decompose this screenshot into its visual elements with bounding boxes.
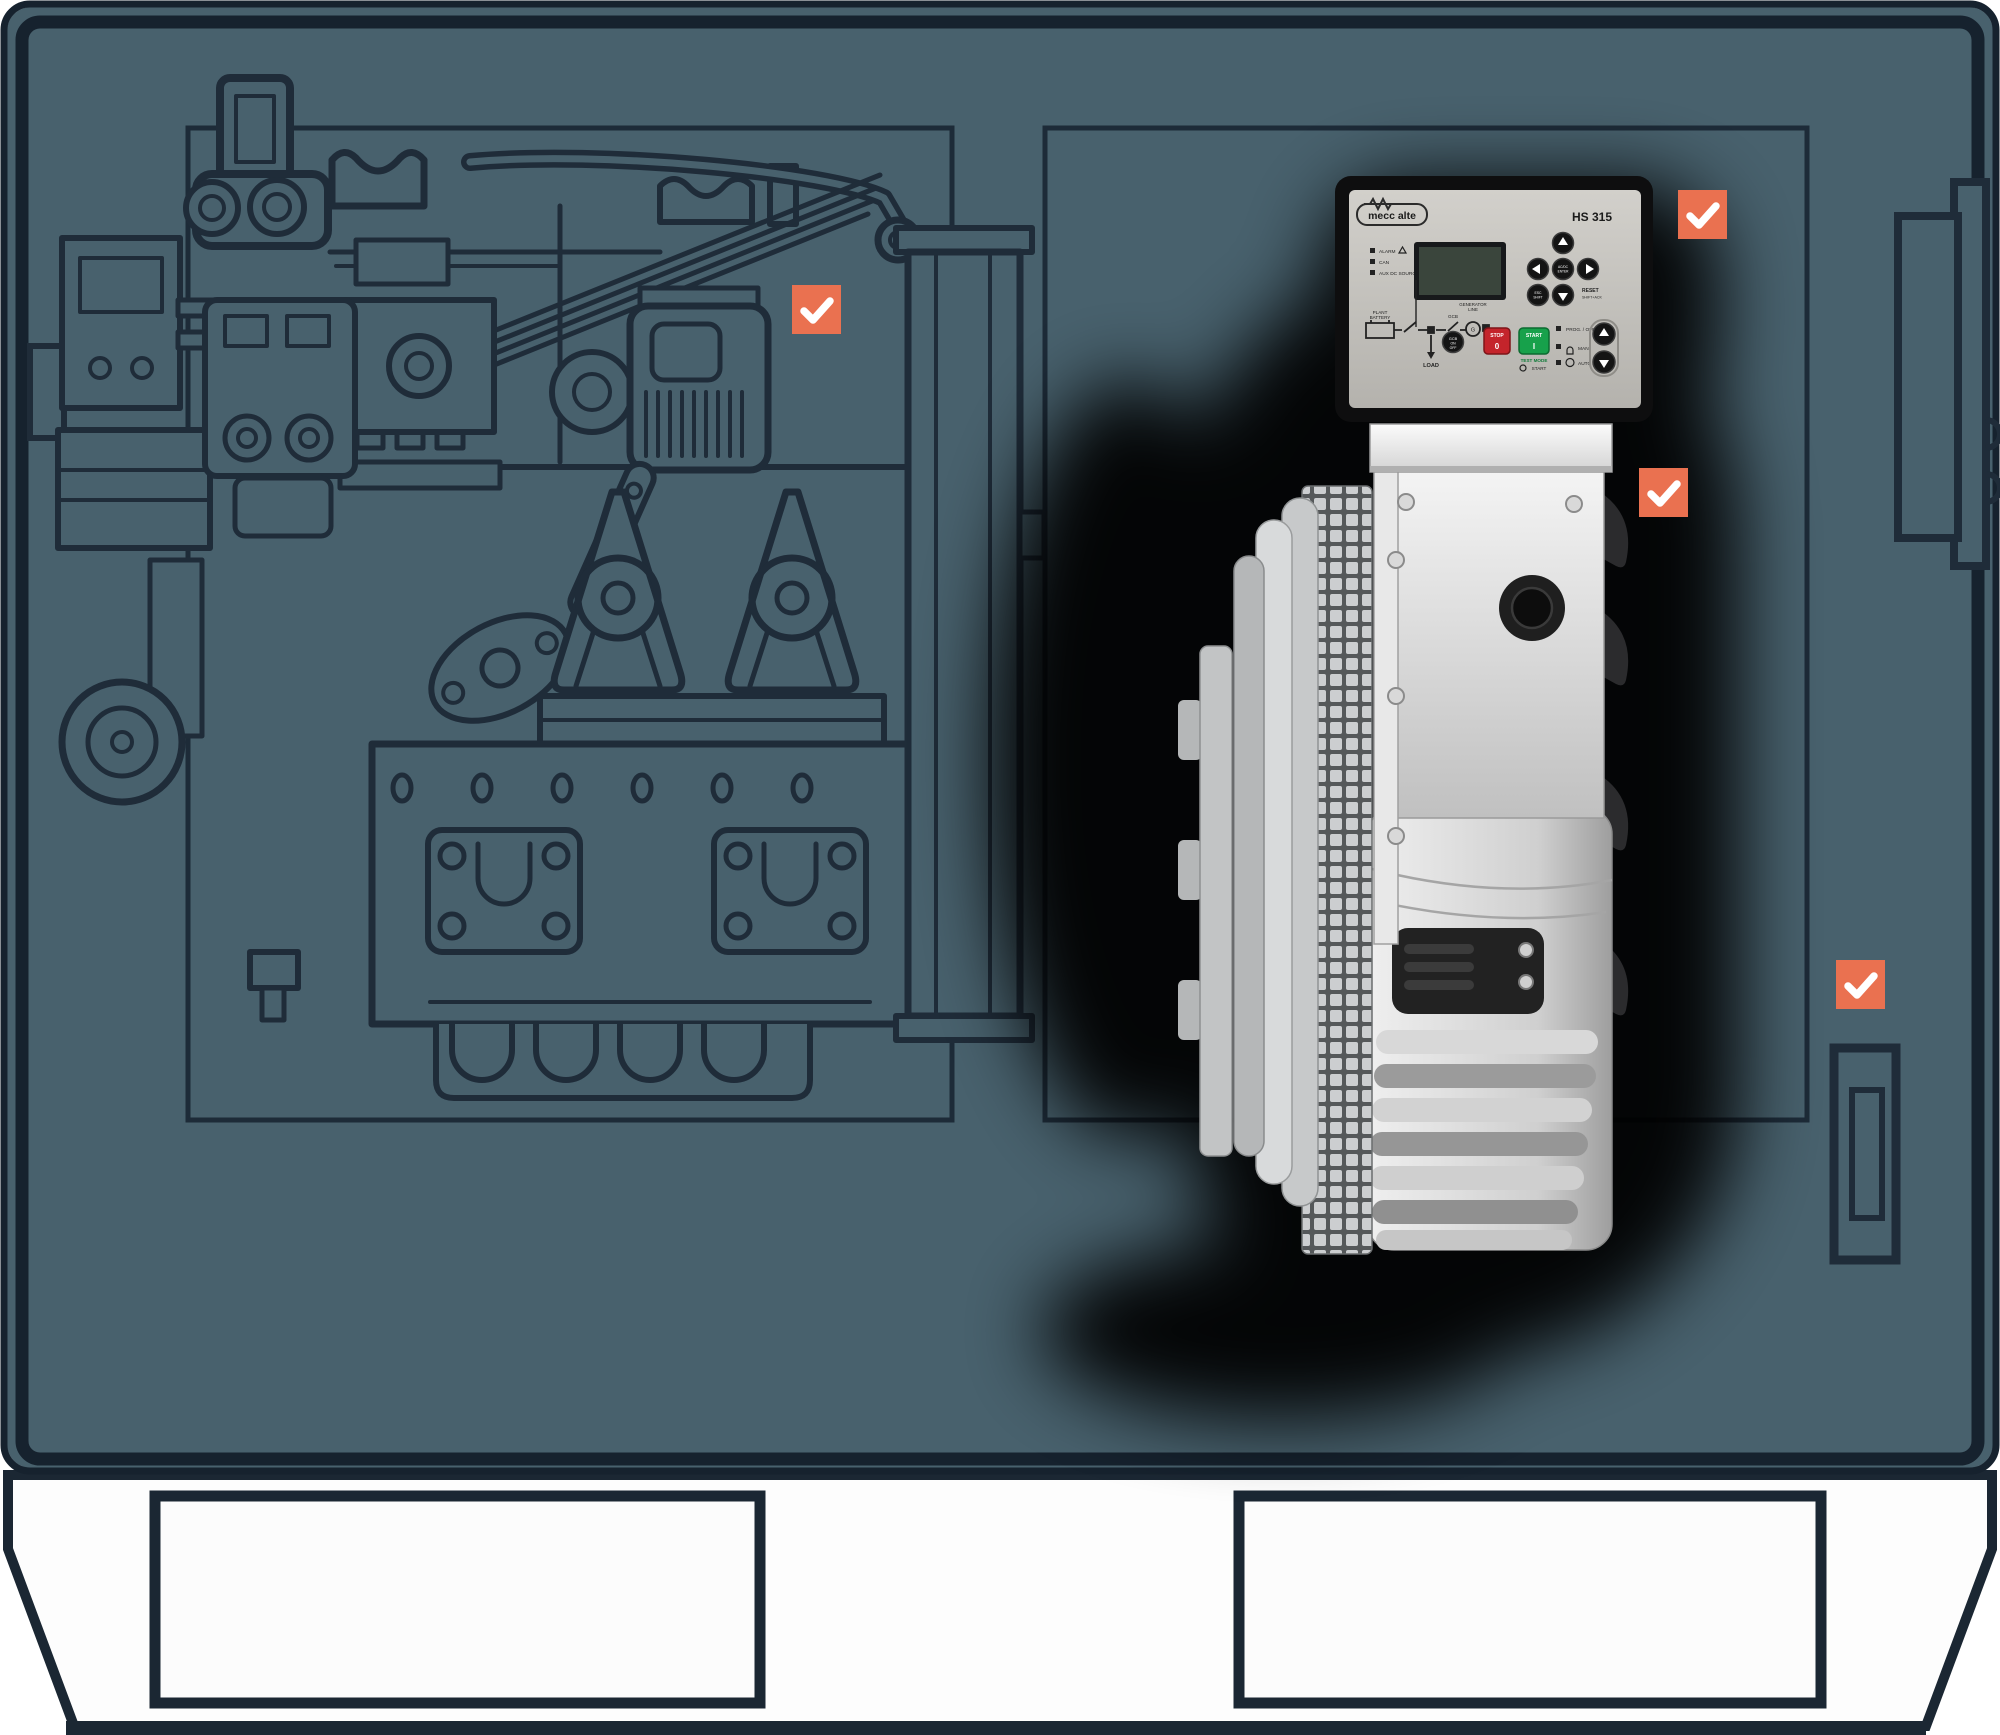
fan-cover-rings: [1234, 498, 1318, 1206]
stop-button: STOP 0: [1484, 328, 1510, 354]
enter-line1: AC/DC: [1558, 265, 1569, 269]
generator-label-2: LINE: [1468, 307, 1478, 312]
led-alarm-label: ALARM: [1379, 249, 1396, 255]
generator-symbol: G: [1471, 328, 1475, 334]
terminal-box-flange: [1374, 470, 1398, 944]
model-text: HS 315: [1572, 210, 1612, 224]
genset-configurator-illustration: mecc alte HS 315 ALARM CAN AUX DC SOURCE…: [0, 0, 2000, 1735]
terminal-box-lid: [1370, 424, 1612, 472]
esc-line2: SHIFT: [1533, 296, 1542, 300]
reset-sub-label: SHIFT+ACK: [1582, 296, 1602, 300]
test-mode-label: TEST MODE: [1521, 358, 1548, 363]
start-symbol: I: [1533, 342, 1535, 351]
terminal-box: [1378, 470, 1604, 818]
test-start-label: START: [1532, 366, 1547, 371]
side-bracket: [1834, 1048, 1896, 1260]
checkmark-badge-controller[interactable]: [1678, 190, 1727, 239]
stop-label: STOP: [1490, 333, 1504, 339]
reset-label: RESET: [1582, 288, 1599, 294]
breaker-label: GCB: [1448, 314, 1458, 319]
genset-cutaway-svg: mecc alte HS 315 ALARM CAN AUX DC SOURCE…: [0, 0, 2000, 1735]
gcb-button-line2: ON: [1450, 342, 1456, 346]
brand-text: mecc alte: [1368, 210, 1416, 222]
gcb-button: GCB ON OFF: [1443, 332, 1464, 353]
base-left-foot: [155, 1496, 760, 1703]
alternator-intake-scoop: [1392, 928, 1544, 1014]
controller-panel: mecc alte HS 315 ALARM CAN AUX DC SOURCE…: [1335, 176, 1653, 422]
checkmark-badge-canopy-side[interactable]: [1836, 960, 1885, 1009]
canopy-left-hinge: [30, 346, 64, 438]
base-right-foot: [1239, 1496, 1821, 1703]
gcb-button-line1: GCB: [1449, 337, 1458, 341]
checkmark-badge-engine[interactable]: [792, 285, 841, 334]
mode-man-label: MAN.: [1578, 346, 1590, 352]
start-label: START: [1526, 333, 1542, 339]
base-skid: [8, 1475, 1992, 1735]
base-ground-strip: [66, 1721, 1926, 1735]
enter-line2: ENTER: [1558, 270, 1570, 274]
esc-line1: ESC: [1535, 291, 1543, 295]
stop-symbol: 0: [1495, 342, 1500, 351]
battery-label-2: BATTERY: [1370, 315, 1391, 320]
side-vent-door: [1898, 216, 1958, 538]
load-label: LOAD: [1423, 363, 1439, 369]
lcd-screen: [1419, 247, 1501, 295]
led-aux-label: AUX DC SOURCE: [1379, 271, 1419, 277]
led-can-label: CAN: [1379, 260, 1390, 266]
checkmark-badge-alternator[interactable]: [1639, 468, 1688, 517]
gcb-button-line3: OFF: [1450, 346, 1457, 350]
